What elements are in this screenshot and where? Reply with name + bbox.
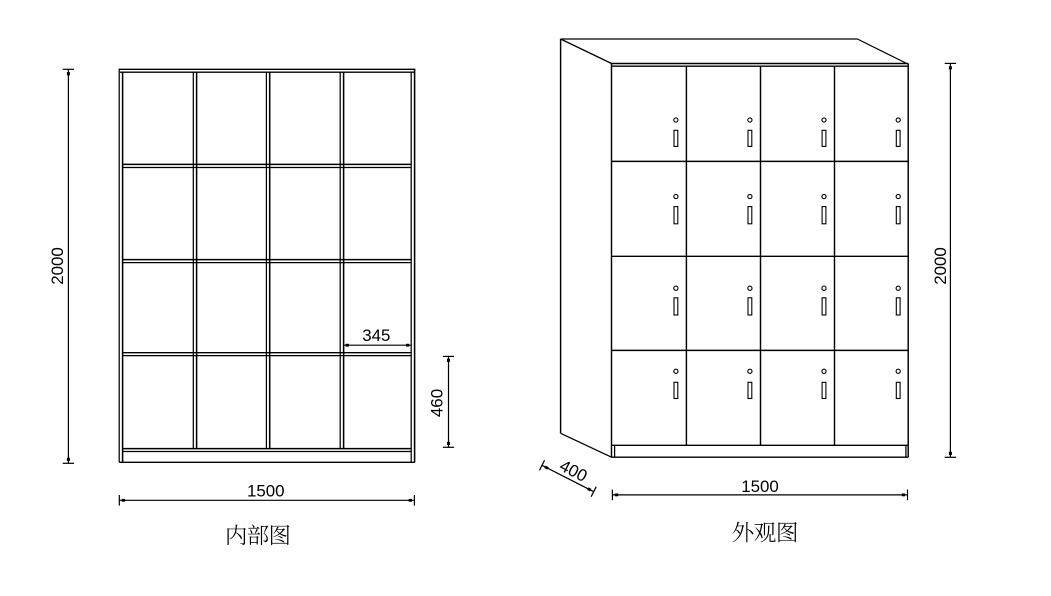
svg-text:345: 345 (362, 326, 390, 345)
svg-text:1500: 1500 (741, 477, 779, 496)
svg-text:1500: 1500 (247, 481, 285, 500)
svg-text:460: 460 (427, 389, 446, 417)
svg-text:2000: 2000 (48, 247, 67, 285)
svg-text:2000: 2000 (931, 247, 950, 285)
